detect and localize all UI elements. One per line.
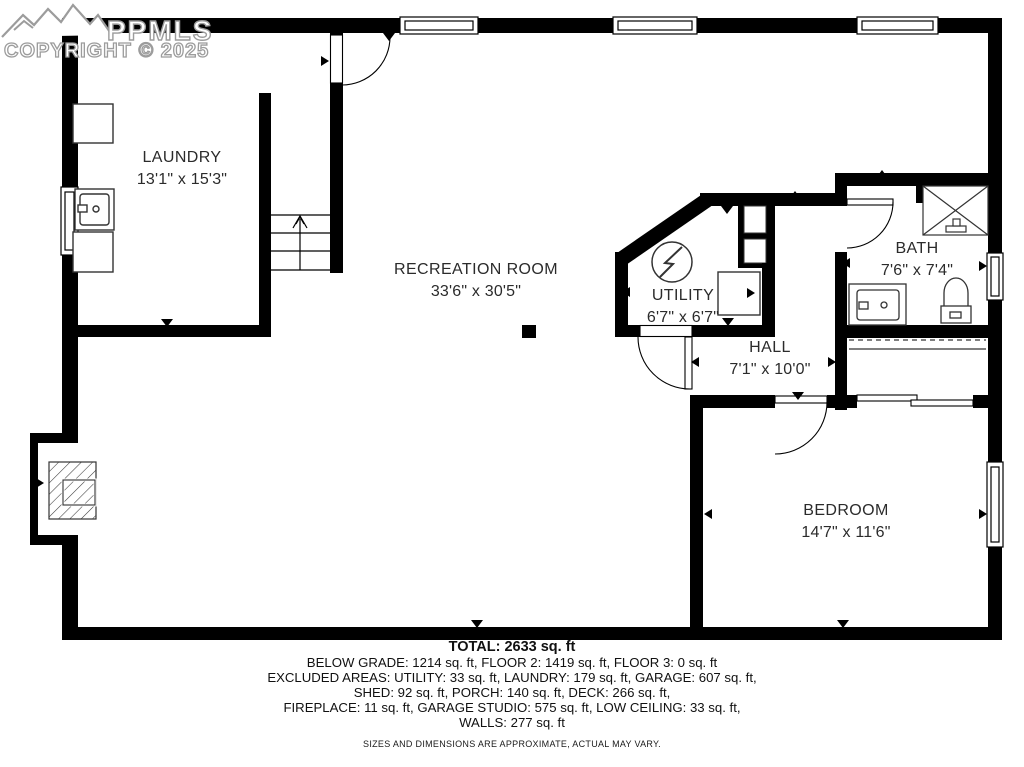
window-top-2 [613,17,697,34]
floor-plan-page: { "watermark": { "logo_text": "PPMLS", "… [0,0,1024,767]
laundry-room [62,93,271,337]
window-bedroom-right [987,462,1003,547]
room-dims: 14'7" x 11'6" [801,522,890,544]
furnace-icon [652,242,692,282]
summary-line: FIREPLACE: 11 sq. ft, GARAGE STUDIO: 575… [0,700,1024,715]
summary-line: WALLS: 277 sq. ft [0,715,1024,730]
washer [73,104,113,143]
bath-door-panel [847,199,893,205]
watermark: PPMLS COPYRIGHT © 2025 [2,5,213,62]
room-name: RECREATION ROOM [394,259,558,281]
shelf-1 [744,206,766,233]
support-column [522,325,536,338]
utility-door-panel [685,337,692,389]
window-top-1 [400,17,478,34]
shelf-2 [744,239,766,263]
dryer [73,232,113,272]
room-dims: 13'1" x 15'3" [137,169,227,191]
utility-door-arc [638,337,690,389]
room-dims: 7'1" x 10'0" [729,359,810,381]
toilet [941,278,971,323]
closet-sliding-doors [857,395,973,406]
room-name: LAUNDRY [137,147,227,169]
shower [923,186,988,235]
room-label-recreation: RECREATION ROOM 33'6" x 30'5" [394,259,558,303]
window-bath-right [987,253,1003,300]
watermark-copyright: COPYRIGHT © 2025 [4,40,209,62]
room-name: BATH [881,238,953,260]
room-name: BEDROOM [801,500,890,522]
room-name: UTILITY [647,285,719,307]
laundry-sink [75,189,114,230]
room-name: HALL [729,337,810,359]
summary-line: SHED: 92 sq. ft, PORCH: 140 sq. ft, DECK… [0,685,1024,700]
room-label-hall: HALL 7'1" x 10'0" [729,337,810,381]
summary-line: BELOW GRADE: 1214 sq. ft, FLOOR 2: 1419 … [0,655,1024,670]
angled-wall [620,200,707,260]
room-dims: 33'6" x 30'5" [394,281,558,303]
room-label-laundry: LAUNDRY 13'1" x 15'3" [137,147,227,191]
stairs-up-arrow [293,216,307,270]
total-area: TOTAL: 2633 sq. ft [0,640,1024,655]
recreation-room [522,325,536,338]
bedroom-door-arc [775,402,827,454]
mountain-logo-icon [2,5,112,37]
stair-door-arc [342,37,390,85]
fireplace [49,462,96,519]
bedroom-door-panel [775,396,827,403]
room-label-utility: UTILITY 6'7" x 6'7" [647,285,719,329]
disclaimer: SIZES AND DIMENSIONS ARE APPROXIMATE, AC… [0,739,1024,749]
room-label-bedroom: BEDROOM 14'7" x 11'6" [801,500,890,544]
closet [849,340,986,349]
room-dims: 7'6" x 7'4" [881,260,953,282]
room-label-bath: BATH 7'6" x 7'4" [881,238,953,282]
window-top-3 [857,17,938,34]
vanity-sink [849,284,906,325]
stair-door-jamb [331,35,343,83]
bathroom [835,173,1002,410]
area-summary: TOTAL: 2633 sq. ft BELOW GRADE: 1214 sq.… [0,640,1024,749]
staircase [271,18,390,273]
room-dims: 6'7" x 6'7" [647,307,719,329]
summary-line: EXCLUDED AREAS: UTILITY: 33 sq. ft, LAUN… [0,670,1024,685]
